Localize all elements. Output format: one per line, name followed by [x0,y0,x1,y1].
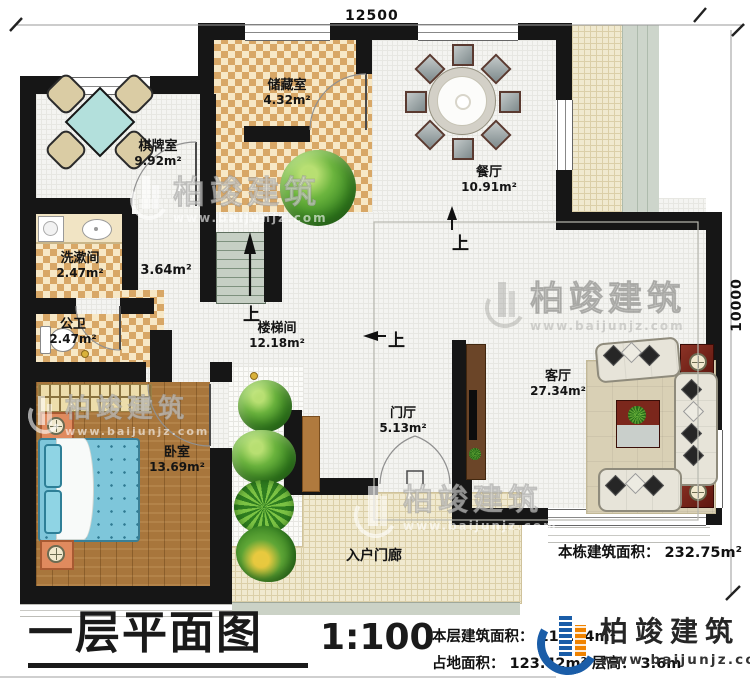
closet [38,384,152,412]
wall [330,23,418,40]
table-plant [628,406,646,424]
dimension-right: 10000 [729,275,745,335]
wall [264,216,282,302]
dining-chair [499,91,521,113]
title-underline [28,663,308,668]
wall [556,170,572,212]
wall [120,298,154,314]
brand-logo-icon [540,612,596,676]
toilet-label: 公卫2.47m² [49,318,96,347]
wall [20,76,36,586]
wall [472,508,548,525]
dining-room-label: 餐厅10.91m² [461,166,517,195]
flower-bush [236,526,296,582]
tv [469,390,477,440]
washroom-label: 洗漱间2.47m² [56,252,103,281]
tree [238,380,292,432]
wall [356,23,372,74]
wall [20,298,76,314]
patio-deck [572,25,622,212]
wall [20,198,132,214]
bedside-lamp [47,417,65,435]
foyer-label: 门厅5.13m² [379,407,426,436]
living-room-label: 客厅27.34m² [530,370,586,399]
brand-url: www.baijunjz.com [600,652,750,668]
wall [122,214,138,290]
wall [150,330,172,382]
dimension-top: 12500 [345,8,399,24]
window [418,24,518,41]
dining-chair [452,44,474,66]
hallway-area-label: 3.64m² [140,264,191,279]
decor-plant [469,448,481,460]
door-stop [81,350,89,358]
page-title: 一层平面图 [28,610,263,655]
wall [200,94,216,302]
wall [452,478,472,525]
up-label-hall-top: 上 [452,229,469,254]
wall [20,586,232,604]
game-room-label: 棋牌室9.92m² [134,140,181,169]
up-label-hall-left: 上 [388,326,405,351]
sink-drain [94,227,98,231]
patio-sliding-door [557,100,573,170]
brand-name: 柏竣建筑 [600,618,740,646]
dining-table-center [455,94,471,110]
up-label-stairs: 上 [243,300,260,325]
porch-step [228,602,520,615]
wall [556,37,572,100]
tree [280,150,356,226]
building-total: 本栋建筑面积： 232.75m² [558,541,742,562]
wall [20,362,146,382]
wall [556,212,722,230]
tv-feature-wall [452,340,466,478]
wall [210,448,232,586]
wall [244,126,310,142]
table-lamp [689,353,707,371]
foyer-cabinet [302,416,320,492]
dining-chair [405,91,427,113]
bed-pillow [44,444,62,488]
bedroom-label: 卧室13.69m² [149,446,205,475]
title-rule [0,676,556,678]
door-stop [250,372,258,380]
window [245,24,330,41]
staircase [216,232,266,304]
floor-plan-canvas: 12500 10000 棋牌室9.92m² 储藏室4.32m² 餐厅10.91m… [0,0,750,686]
porch-label: 入户门廊 [346,548,402,564]
bedside-lamp [47,545,65,563]
shrub [232,430,296,484]
storage-room-label: 储藏室4.32m² [263,79,310,108]
washer-drum [43,221,58,236]
dining-chair [452,138,474,160]
bed-pillow [44,490,62,534]
wall [214,23,245,40]
wall [198,23,214,94]
stairwell-label: 楼梯间12.18m² [249,322,305,351]
scale-label: 1:100 [320,620,435,656]
patio-walkway [622,25,659,212]
wall [210,362,232,382]
